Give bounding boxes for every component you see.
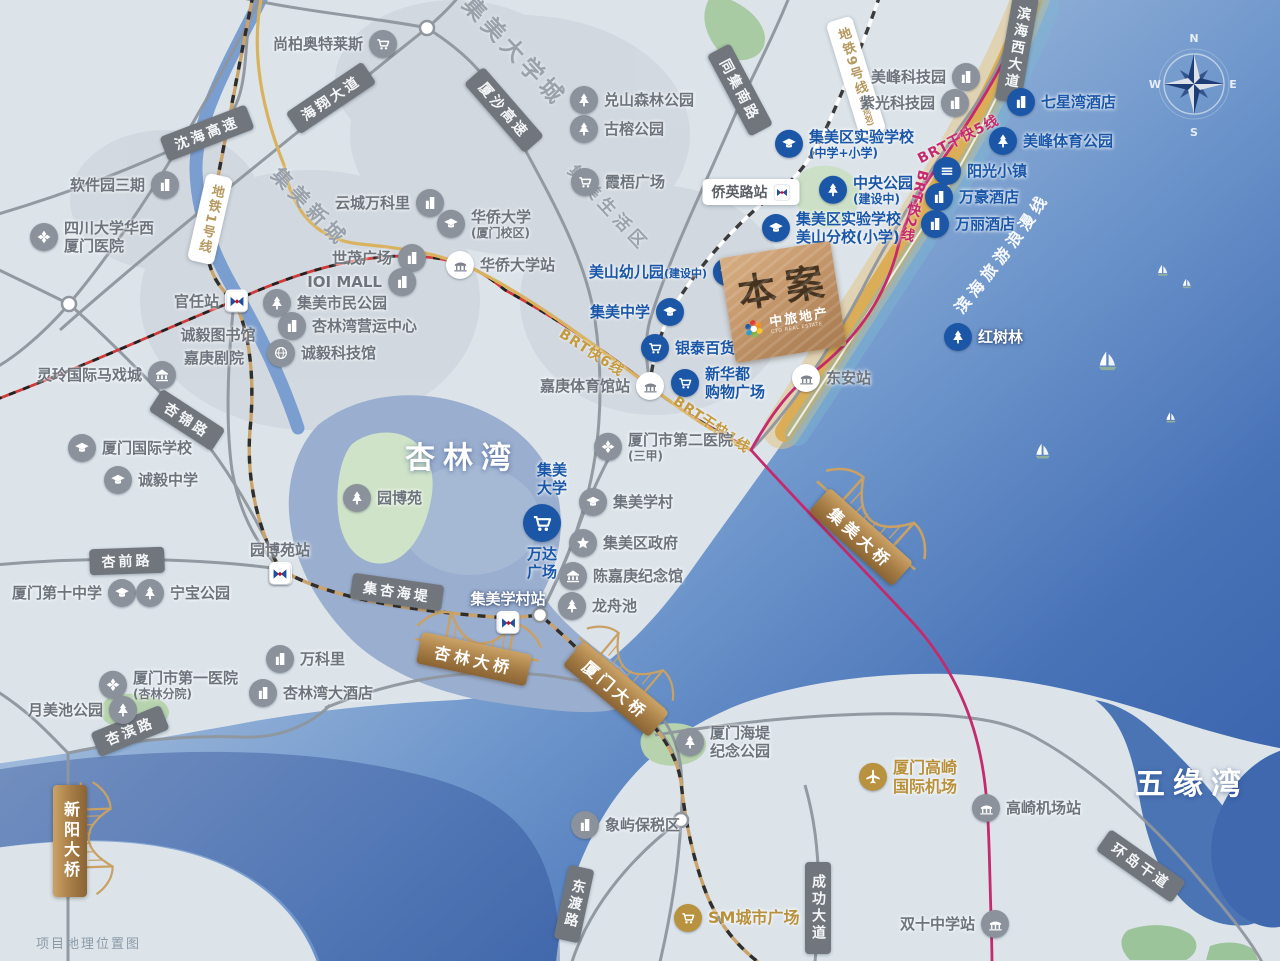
project-site-marker: 本案 中旅地产 CTG REAL ESTATE [719,241,846,363]
developer-brand: 中旅地产 CTG REAL ESTATE [742,306,831,341]
project-site-label: 本案 [725,261,836,315]
metro-icon [774,184,791,201]
station-pill-qiaoyinglu: 侨英路站 [703,179,800,205]
ctg-logo-icon [742,316,767,341]
compass-icon: N S E W [1148,26,1240,142]
svg-text:S: S [1190,126,1198,139]
svg-text:W: W [1149,78,1161,91]
developer-name: 中旅地产 [769,307,831,331]
svg-text:E: E [1229,78,1237,91]
base-map-svg: 滨海旅游浪漫线 [0,0,1280,961]
map-caption: 项目地理位置图 [36,933,141,952]
developer-name-en: CTG REAL ESTATE [771,321,831,336]
station-pill-label: 侨英路站 [712,182,768,202]
location-map: 滨海旅游浪漫线 沈海高速海翔大道厦沙高速同集南路滨海西大道杏锦路杏前路集杏海堤杏… [0,0,1280,961]
urban-area-shading [70,0,790,430]
svg-text:N: N [1189,32,1198,45]
